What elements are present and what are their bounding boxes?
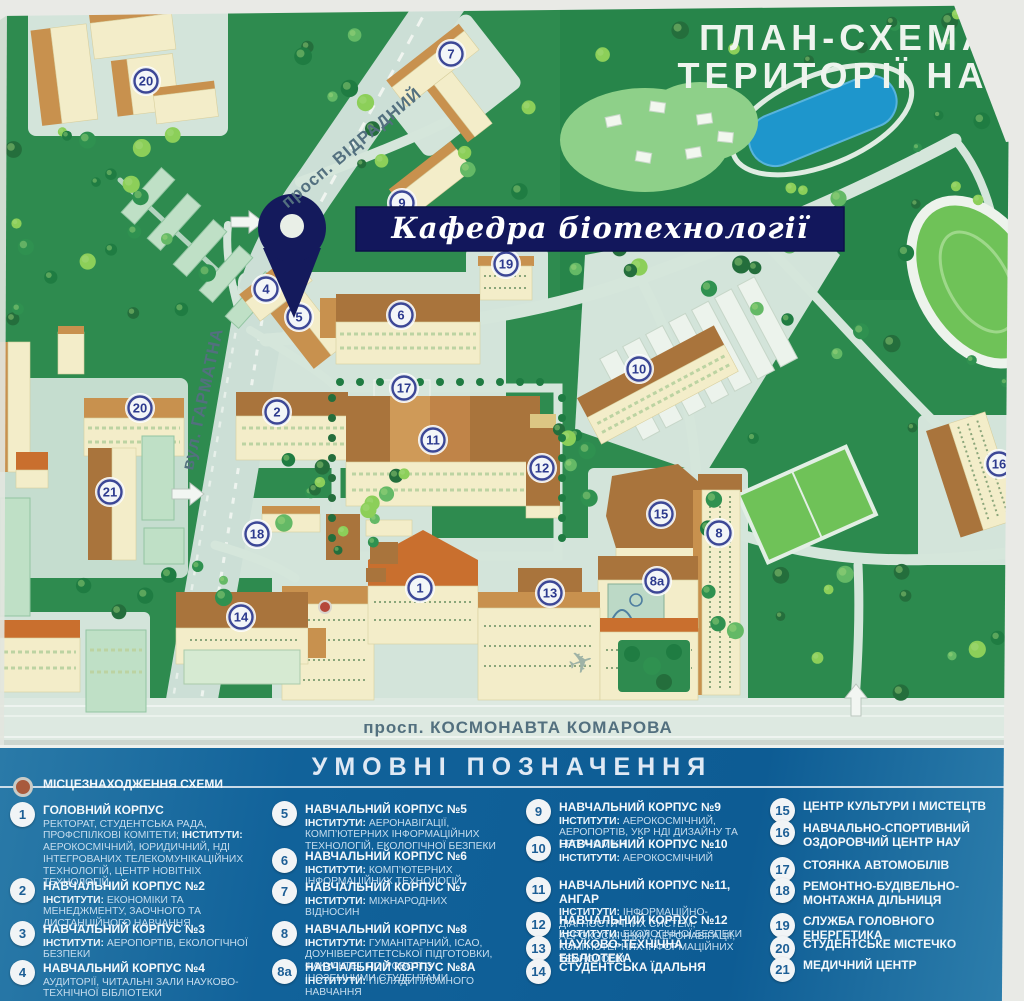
legend-item-number: 11: [526, 877, 551, 902]
legend-item-3: 3НАВЧАЛЬНИЙ КОРПУС №3ІНСТИТУТИ: АЕРОПОРТ…: [10, 923, 260, 961]
building-marker-10: 10: [625, 355, 654, 384]
legend-item-21: 21МЕДИЧНИЙ ЦЕНТР: [770, 959, 1010, 982]
svg-text:14: 14: [234, 610, 249, 625]
legend-item-4: 4НАВЧАЛЬНИЙ КОРПУС №4АУДИТОРІЇ, ЧИТАЛЬНІ…: [10, 962, 260, 1000]
svg-text:12: 12: [535, 461, 549, 476]
street-label-komarova: просп. КОСМОНАВТА КОМАРОВА: [363, 718, 673, 737]
legend-item-title: МІСЦЕЗНАХОДЖЕННЯ СХЕМИ: [43, 778, 223, 792]
legend-column-3: 9НАВЧАЛЬНИЙ КОРПУС №9ІНСТИТУТИ: АЕРОКОСМ…: [526, 748, 758, 1001]
legend-column-1: МІСЦЕЗНАХОДЖЕННЯ СХЕМИ1ГОЛОВНИЙ КОРПУСРЕ…: [10, 748, 260, 1001]
legend-item-desc: ІНСТИТУТИ: АЕРОКОСМІЧНИЙ: [559, 853, 728, 865]
location-dot-icon: [13, 777, 33, 797]
legend-item-number: 14: [526, 959, 551, 984]
svg-text:17: 17: [397, 381, 411, 396]
building-marker-18: 18: [243, 520, 272, 549]
building-8: [693, 474, 742, 695]
legend-location-item: МІСЦЕЗНАХОДЖЕННЯ СХЕМИ: [10, 778, 260, 797]
legend-item-title: НАВЧАЛЬНИЙ КОРПУС №8А: [305, 961, 504, 975]
legend-item-desc: АУДИТОРІЇ, ЧИТАЛЬНІ ЗАЛИ НАУКОВО-ТЕХНІЧН…: [43, 977, 260, 1001]
building-marker-16: 16: [985, 450, 1014, 479]
svg-text:10: 10: [632, 362, 646, 377]
legend-item-number: 2: [10, 878, 35, 903]
legend-item-title: НАВЧАЛЬНИЙ КОРПУС №11, АНГАР: [559, 879, 758, 906]
legend-item-number: 18: [770, 878, 795, 903]
building-marker-8: 8: [705, 519, 734, 548]
svg-text:21: 21: [103, 485, 117, 500]
svg-text:4: 4: [262, 282, 270, 297]
legend-item-title: НАВЧАЛЬНИЙ КОРПУС №9: [559, 801, 758, 815]
legend-item-title: НАВЧАЛЬНИЙ КОРПУС №12: [559, 914, 742, 928]
legend-item-title: ГОЛОВНИЙ КОРПУС: [43, 804, 260, 818]
legend-item-number: 10: [526, 836, 551, 861]
svg-text:13: 13: [543, 586, 557, 601]
legend-item-8a: 8aНАВЧАЛЬНИЙ КОРПУС №8АІНСТИТУТИ: ПІСЛЯД…: [272, 961, 504, 999]
legend-item-number: 6: [272, 848, 297, 873]
building-marker-19: 19: [492, 250, 521, 279]
campus-map-svg: ✈ 207919465101720211121621158188a11314 К…: [0, 0, 1024, 745]
building-marker-17: 17: [390, 374, 419, 403]
building-marker-20: 20: [126, 394, 155, 423]
legend-item-number: 4: [10, 960, 35, 985]
svg-text:20: 20: [133, 401, 147, 416]
svg-text:2: 2: [273, 405, 280, 420]
legend-item-number: 12: [526, 912, 551, 937]
legend-item-title: НАВЧАЛЬНИЙ КОРПУС №5: [305, 803, 504, 817]
legend-item-number: 3: [10, 921, 35, 946]
legend-item-18: 18РЕМОНТНО-БУДІВЕЛЬНО-МОНТАЖНА ДІЛЬНИЦЯ: [770, 880, 1010, 907]
legend-column-4: 15ЦЕНТР КУЛЬТУРИ І МИСТЕЦТВ16НАВЧАЛЬНО-С…: [770, 748, 1010, 1001]
svg-text:7: 7: [447, 47, 454, 62]
legend-item-title: НАВЧАЛЬНО-СПОРТИВНИЙ ОЗДОРОВЧИЙ ЦЕНТР НА…: [803, 822, 1010, 849]
legend-item-number: 9: [526, 799, 551, 824]
campus-map: ✈ 207919465101720211121621158188a11314 К…: [0, 0, 1024, 745]
legend-item-title: ЦЕНТР КУЛЬТУРИ І МИСТЕЦТВ: [803, 800, 986, 814]
legend-item-title: МЕДИЧНИЙ ЦЕНТР: [803, 959, 917, 973]
building-marker-15: 15: [647, 500, 676, 529]
legend-item-number: 8a: [272, 959, 297, 984]
legend-item-title: НАВЧАЛЬНИЙ КОРПУС №7: [305, 881, 504, 895]
legend-item-title: НАВЧАЛЬНИЙ КОРПУС №3: [43, 923, 260, 937]
legend-column-2: 5НАВЧАЛЬНИЙ КОРПУС №5ІНСТИТУТИ: АЕРОНАВІ…: [272, 748, 504, 1001]
svg-text:16: 16: [992, 457, 1006, 472]
legend-item-title: НАВЧАЛЬНИЙ КОРПУС №6: [305, 850, 504, 864]
building-marker-7: 7: [437, 40, 466, 69]
you-are-here-dot: [319, 601, 331, 613]
svg-text:6: 6: [397, 308, 404, 323]
building-marker-14: 14: [227, 603, 256, 632]
legend-item-title: СТУДЕНТСЬКЕ МІСТЕЧКО: [803, 938, 956, 952]
legend-item-number: 19: [770, 913, 795, 938]
legend-item-number: 8: [272, 921, 297, 946]
legend-item-number: 13: [526, 936, 551, 961]
legend-item-number: 7: [272, 879, 297, 904]
building-marker-1: 1: [406, 574, 435, 603]
building-marker-5: 5: [285, 303, 314, 332]
building-marker-20: 20: [132, 67, 161, 96]
legend-item-title: СТОЯНКА АВТОМОБІЛІВ: [803, 859, 949, 873]
legend-item-title: НАВЧАЛЬНИЙ КОРПУС №8: [305, 923, 504, 937]
legend-item-number: 16: [770, 820, 795, 845]
building-marker-21: 21: [96, 478, 125, 507]
banner-label: Кафедра біотехнології: [390, 211, 810, 245]
legend-item-desc: ІНСТИТУТИ: АЕРОПОРТІВ, ЕКОЛОГІЧНОЇ БЕЗПЕ…: [43, 938, 260, 962]
legend-item-title: НАВЧАЛЬНИЙ КОРПУС №4: [43, 962, 260, 976]
legend-item-desc: ІНСТИТУТИ: МІЖНАРОДНИХ ВІДНОСИН: [305, 896, 504, 920]
legend-item-10: 10НАВЧАЛЬНИЙ КОРПУС №10ІНСТИТУТИ: АЕРОКО…: [526, 838, 758, 864]
legend-item-title: НАВЧАЛЬНИЙ КОРПУС №2: [43, 880, 260, 894]
svg-text:8a: 8a: [650, 574, 665, 589]
legend-item-1: 1ГОЛОВНИЙ КОРПУСРЕКТОРАТ, СТУДЕНТСЬКА РА…: [10, 804, 260, 889]
legend-item-15: 15ЦЕНТР КУЛЬТУРИ І МИСТЕЦТВ: [770, 800, 1010, 823]
building-marker-4: 4: [252, 275, 281, 304]
building-marker-6: 6: [387, 301, 416, 330]
svg-text:11: 11: [426, 433, 440, 448]
legend-item-5: 5НАВЧАЛЬНИЙ КОРПУС №5ІНСТИТУТИ: АЕРОНАВІ…: [272, 803, 504, 853]
svg-text:15: 15: [654, 507, 668, 522]
legend-item-number: 5: [272, 801, 297, 826]
biotech-banner: Кафедра біотехнології: [356, 207, 844, 251]
legend-item-title: НАВЧАЛЬНИЙ КОРПУС №10: [559, 838, 728, 852]
building-marker-8a: 8a: [643, 567, 672, 596]
legend-item-desc: ІНСТИТУТИ: АЕРОНАВІГАЦІЇ, КОМП’ЮТЕРНИХ І…: [305, 818, 504, 853]
legend-item-7: 7НАВЧАЛЬНИЙ КОРПУС №7ІНСТИТУТИ: МІЖНАРОД…: [272, 881, 504, 919]
legend-item-14: 14СТУДЕНТСЬКА ЇДАЛЬНЯ: [526, 961, 758, 984]
legend-item-title: РЕМОНТНО-БУДІВЕЛЬНО-МОНТАЖНА ДІЛЬНИЦЯ: [803, 880, 1010, 907]
svg-text:20: 20: [139, 74, 153, 89]
svg-text:1: 1: [416, 581, 423, 596]
legend-panel: УМОВНІ ПОЗНАЧЕННЯ МІСЦЕЗНАХОДЖЕННЯ СХЕМИ…: [0, 745, 1024, 1001]
svg-text:8: 8: [715, 526, 722, 541]
legend-item-title: СТУДЕНТСЬКА ЇДАЛЬНЯ: [559, 961, 706, 975]
svg-text:18: 18: [250, 527, 264, 542]
building-marker-13: 13: [536, 579, 565, 608]
map-title-line2: ТЕРИТОРІЇ НАУ: [678, 55, 1015, 96]
building-marker-11: 11: [419, 426, 448, 455]
svg-text:19: 19: [499, 257, 513, 272]
legend-item-16: 16НАВЧАЛЬНО-СПОРТИВНИЙ ОЗДОРОВЧИЙ ЦЕНТР …: [770, 822, 1010, 849]
svg-text:5: 5: [295, 310, 302, 325]
building-marker-12: 12: [528, 454, 557, 483]
legend-item-desc: ІНСТИТУТИ: ПІСЛЯДИПЛОМНОГО НАВЧАННЯ: [305, 976, 504, 1000]
legend-item-number: 1: [10, 802, 35, 827]
building-marker-2: 2: [263, 398, 292, 427]
legend-item-number: 21: [770, 957, 795, 982]
map-title-line1: ПЛАН-СХЕМА: [699, 17, 993, 58]
